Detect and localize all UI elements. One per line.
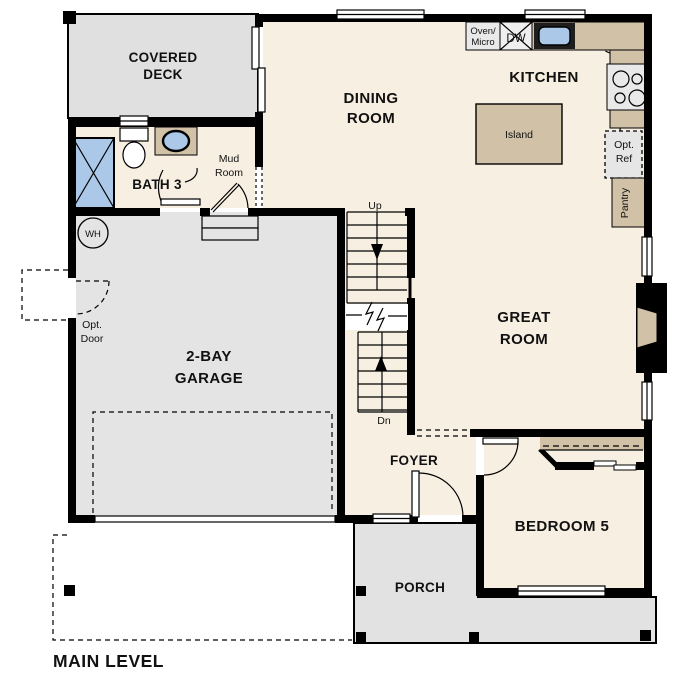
window	[642, 382, 652, 420]
window	[525, 10, 585, 19]
patio-post	[64, 585, 75, 596]
range-box	[607, 64, 645, 110]
oven-micro-label: Oven/	[470, 26, 496, 37]
covered-deck-label: DECK	[143, 67, 182, 82]
dining-room-label: DINING	[344, 90, 399, 107]
garage-door	[95, 516, 335, 522]
stairs-up-label: Up	[368, 200, 382, 212]
bedroom5-floor	[484, 437, 643, 588]
opt-ref-label: Opt.	[614, 139, 634, 151]
garage-step	[202, 228, 258, 240]
covered-deck-floor	[68, 14, 258, 118]
closet-shelf	[540, 437, 644, 450]
bath3-label: BATH 3	[132, 177, 182, 192]
toilet-bowl-icon	[123, 142, 145, 168]
mud-room-label: Mud	[219, 153, 240, 165]
floor-plan-svg: COVERED DECK DINING ROOM KITCHEN Island …	[0, 0, 687, 687]
deck-corner-post	[63, 11, 76, 24]
opt-door-label: Door	[81, 333, 104, 345]
stair-break-band	[346, 304, 408, 330]
great-room-label: GREAT	[497, 309, 550, 326]
dishwasher-label: DW	[506, 33, 525, 45]
window	[337, 10, 424, 19]
opt-door-label: Opt.	[82, 319, 102, 331]
porch-post	[469, 632, 479, 642]
porch-label: PORCH	[395, 580, 445, 595]
pantry-label: Pantry	[619, 187, 631, 218]
stairs-dn-label: Dn	[377, 415, 391, 427]
kitchen-sink-icon	[539, 27, 570, 45]
porch-post	[356, 586, 366, 596]
garage-label: GARAGE	[175, 370, 243, 387]
main-level-title: MAIN LEVEL	[53, 651, 164, 671]
window	[373, 514, 410, 523]
bedroom5-label: BEDROOM 5	[515, 518, 609, 535]
water-heater-label: WH	[85, 229, 101, 240]
toilet-tank-icon	[120, 128, 148, 141]
oven-micro-label: Micro	[471, 37, 494, 48]
porch-post	[640, 630, 651, 641]
window	[642, 237, 652, 276]
garage-floor	[76, 212, 341, 519]
mudroom-opening-dashed	[256, 167, 262, 208]
foyer-label: FOYER	[390, 453, 438, 468]
patio-dashed-outline	[53, 535, 352, 640]
window	[518, 586, 605, 596]
porch-post	[356, 632, 366, 642]
opt-door-landing-dashed	[22, 270, 68, 320]
garage-label: 2-BAY	[186, 348, 232, 365]
bath-sink-icon	[163, 131, 189, 151]
covered-deck-label: COVERED	[129, 50, 198, 65]
kitchen-label: KITCHEN	[509, 69, 578, 86]
fireplace-hearth	[637, 307, 657, 348]
garage-step	[202, 216, 258, 228]
island-label: Island	[505, 129, 533, 141]
dining-room-label: ROOM	[347, 110, 395, 127]
opt-ref-label: Ref	[616, 153, 632, 165]
mud-room-label: Room	[215, 167, 243, 179]
window	[120, 116, 148, 126]
floor-plan-page: COVERED DECK DINING ROOM KITCHEN Island …	[0, 0, 687, 687]
bedroom5-closet	[540, 437, 644, 450]
great-room-label: ROOM	[500, 331, 548, 348]
